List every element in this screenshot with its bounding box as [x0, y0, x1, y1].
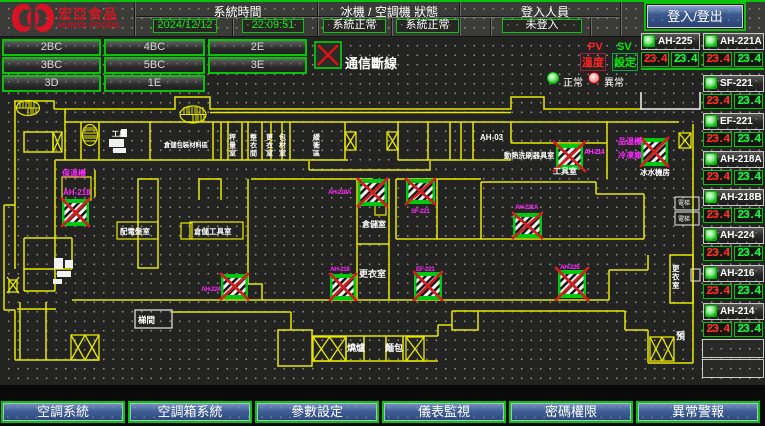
svg-text:AH-221A: AH-221A: [515, 204, 539, 211]
svg-text:室: 室: [266, 148, 273, 157]
svg-text:工具: 工具: [112, 129, 126, 138]
svg-text:動熱洗刷器具室: 動熱洗刷器具室: [504, 151, 554, 160]
svg-text:材: 材: [278, 140, 286, 149]
svg-text:緩: 緩: [313, 132, 321, 141]
svg-text:室: 室: [279, 148, 286, 157]
svg-text:品溫機: 品溫機: [618, 136, 642, 146]
svg-text:倉儲室: 倉儲室: [361, 219, 386, 229]
svg-text:區: 區: [313, 148, 320, 157]
svg-text:衣: 衣: [672, 271, 680, 281]
svg-text:工具室: 工具室: [553, 166, 577, 176]
svg-text:EF-221: EF-221: [416, 266, 435, 273]
svg-text:電梯: 電梯: [678, 199, 690, 207]
svg-text:AH-225: AH-225: [560, 264, 580, 271]
svg-text:更: 更: [266, 133, 274, 141]
svg-text:間: 間: [250, 148, 257, 157]
svg-text:AH-03: AH-03: [480, 133, 504, 142]
svg-text:室: 室: [229, 148, 236, 157]
svg-text:衝: 衝: [312, 140, 320, 149]
svg-text:AH-218: AH-218: [63, 188, 91, 197]
svg-text:更衣室: 更衣室: [359, 268, 386, 279]
svg-text:衣: 衣: [250, 140, 258, 149]
svg-text:倉儲包裝材料區: 倉儲包裝材料區: [163, 140, 209, 149]
svg-text:梯間: 梯間: [138, 315, 155, 325]
svg-text:AH-218A: AH-218A: [328, 189, 352, 196]
svg-text:燒爐: 燒爐: [347, 342, 365, 353]
svg-text:衣: 衣: [266, 140, 274, 149]
svg-text:冷凍庫: 冷凍庫: [618, 150, 642, 160]
svg-text:AH-218: AH-218: [330, 266, 350, 273]
svg-text:預: 預: [676, 331, 686, 341]
svg-text:配電盤室: 配電盤室: [120, 226, 150, 236]
svg-text:SF-221: SF-221: [411, 208, 430, 215]
svg-text:AH-224: AH-224: [201, 286, 221, 293]
svg-text:保溫機: 保溫機: [61, 168, 86, 178]
svg-text:秤: 秤: [229, 132, 236, 141]
svg-text:量: 量: [229, 140, 236, 149]
svg-text:冰水機房: 冰水機房: [640, 167, 670, 177]
svg-text:電梯: 電梯: [678, 215, 690, 223]
svg-text:AH-214: AH-214: [584, 149, 605, 156]
svg-text:包: 包: [279, 132, 286, 141]
svg-text:整: 整: [249, 132, 257, 141]
svg-text:倉儲工具室: 倉儲工具室: [193, 226, 232, 236]
svg-text:麵包: 麵包: [384, 342, 403, 353]
svg-text:室: 室: [672, 280, 680, 290]
